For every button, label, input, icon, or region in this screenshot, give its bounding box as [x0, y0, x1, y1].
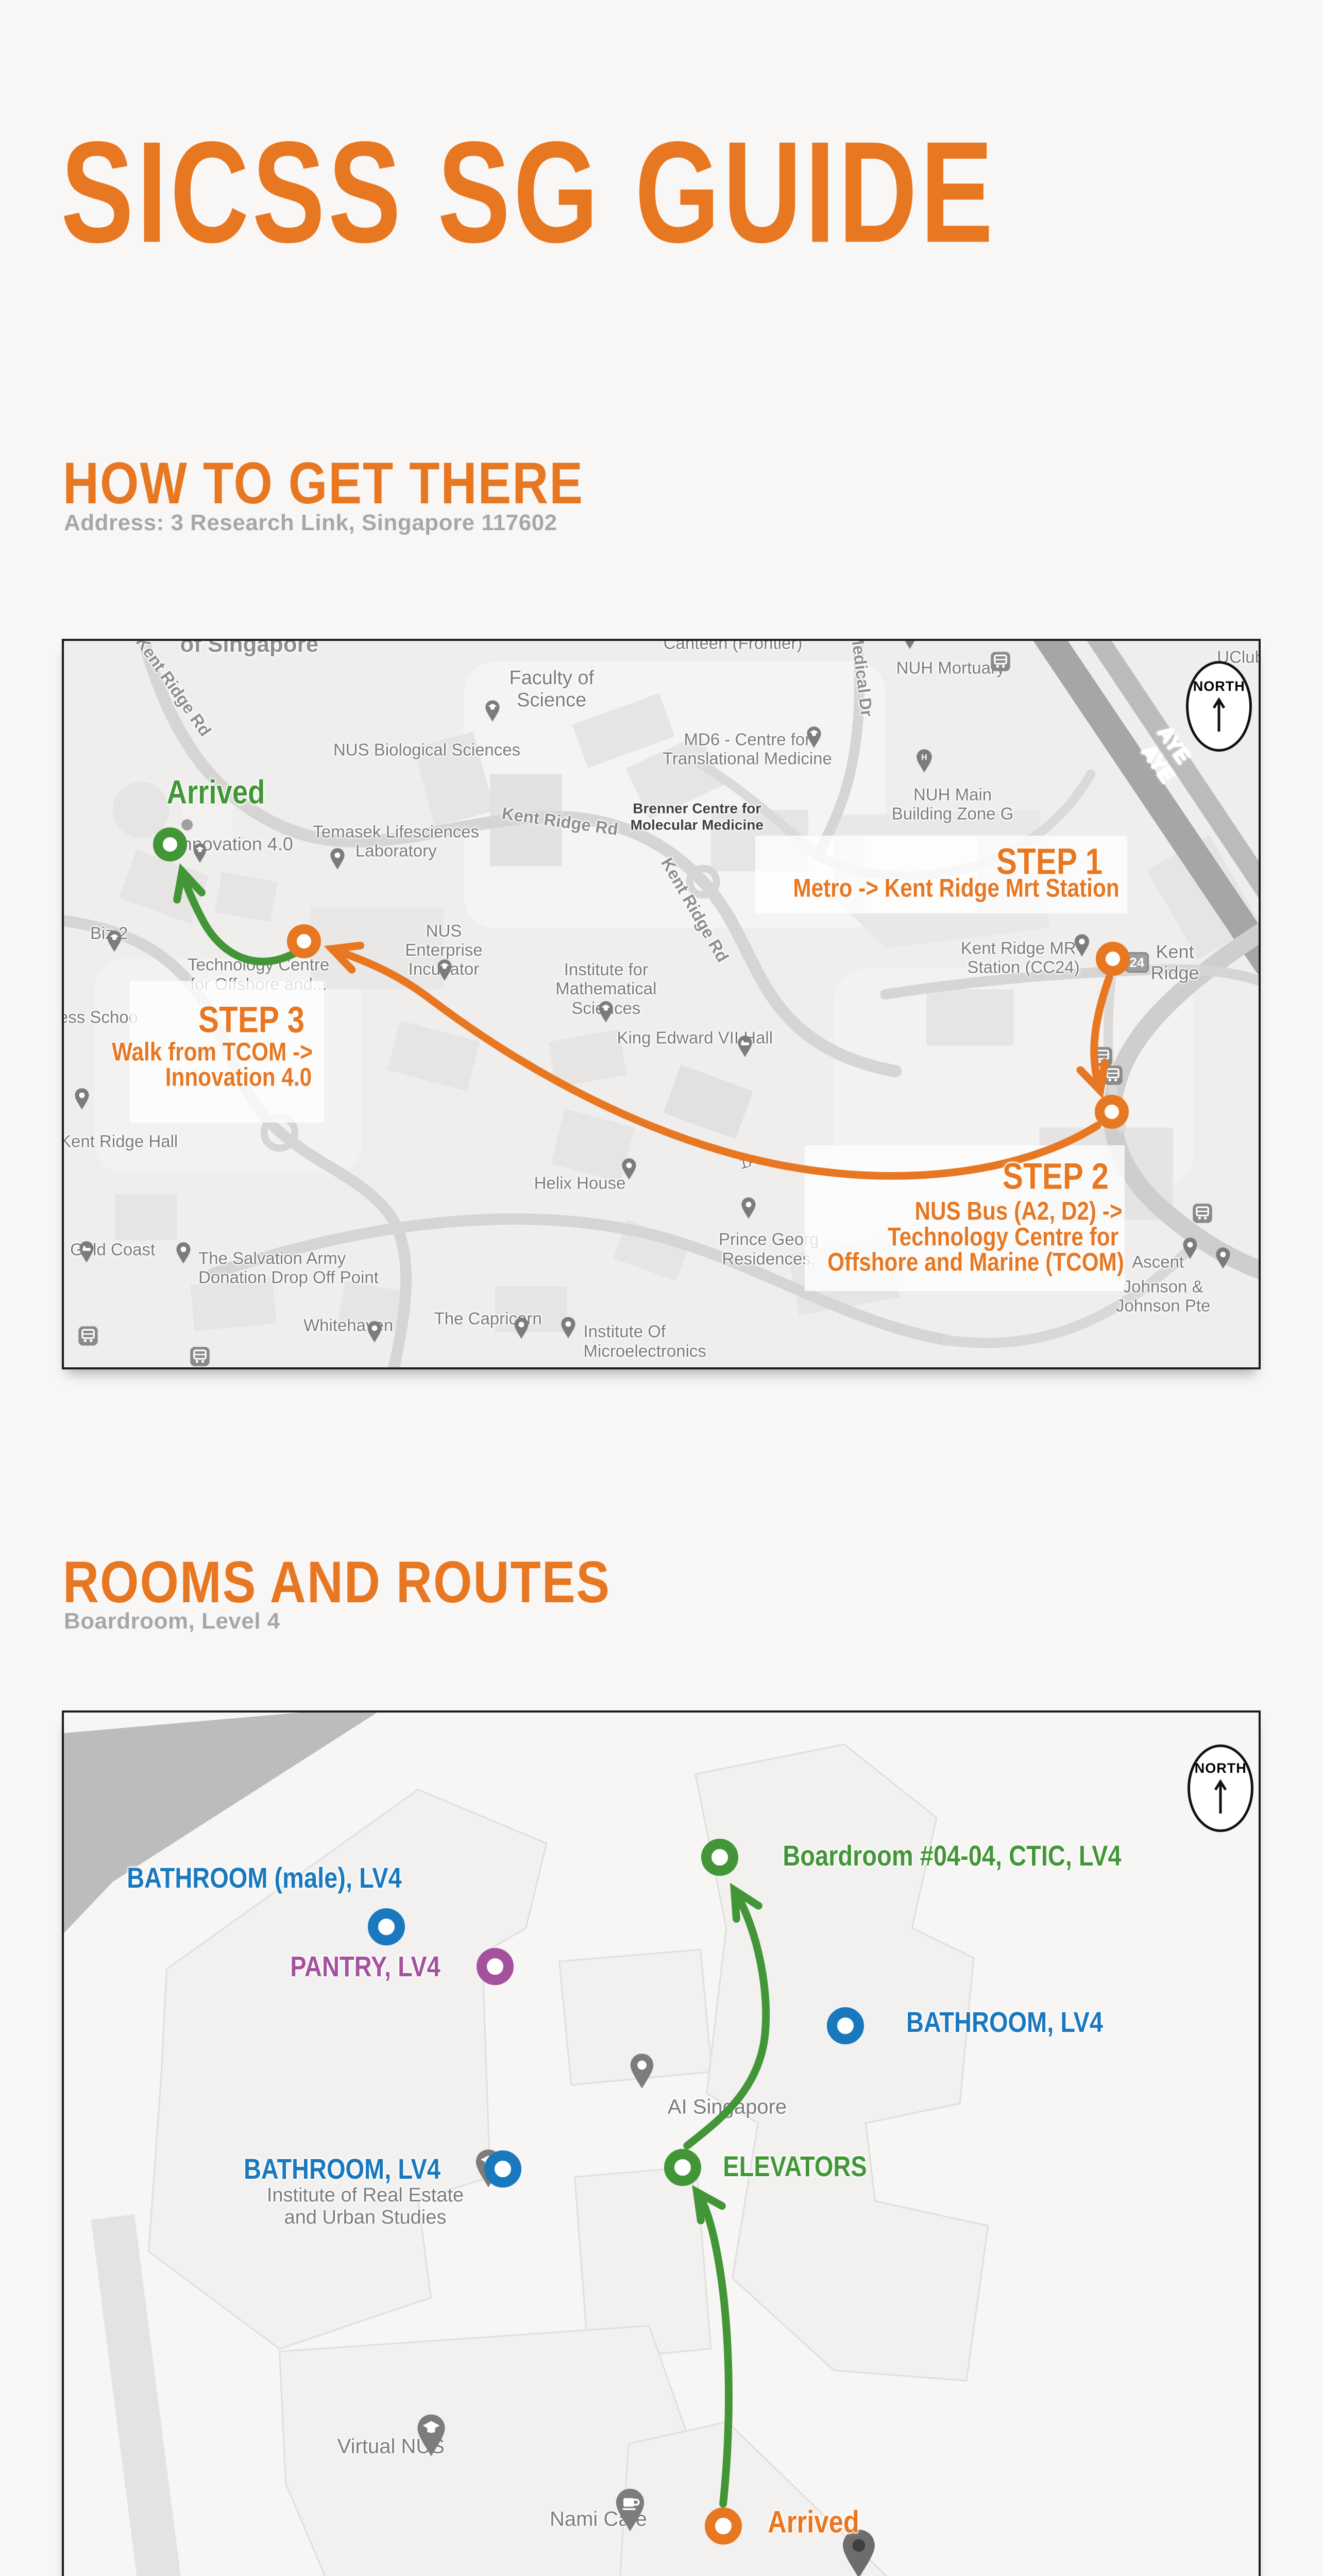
orange-route-marker	[1096, 942, 1130, 976]
plain-map-pin-icon	[1074, 934, 1090, 957]
map-label: Kent Ridge MRT Station (CC24)	[961, 938, 1086, 977]
bus-stop-icon	[1092, 1046, 1113, 1067]
grad-map-pin-icon	[415, 2413, 447, 2458]
cafe-map-pin-icon	[614, 2487, 646, 2533]
infographic-page: SICSS SG GUIDE HOW TO GET THERE Address:…	[0, 0, 1323, 2576]
map-rooms-and-routes: AI SingaporeInstitute of Real Estate and…	[62, 1710, 1261, 2576]
blue-route-marker	[368, 1908, 405, 1945]
grad-map-pin-icon	[485, 700, 501, 722]
map-label: NUH Mortuary	[896, 658, 1005, 677]
route-annotation: Boardroom #04-04, CTIC, LV4	[783, 1839, 1121, 1872]
purple-route-marker	[477, 1948, 514, 1985]
map-label: NUH Main Building Zone G	[892, 785, 1014, 824]
bus-stop-icon	[990, 651, 1011, 672]
route-annotation: STEP 2	[1003, 1156, 1109, 1197]
blue-route-marker	[827, 2007, 864, 2044]
section-heading-rooms-and-routes: ROOMS AND ROUTES	[63, 1548, 610, 1616]
route-annotation: BATHROOM, LV4	[906, 2006, 1103, 2038]
map-label: AI Singapore	[668, 2095, 787, 2119]
plain-map-pin-icon	[621, 1158, 637, 1180]
map-how-to-get-there: of SingaporeCanteen (Frontier)Kent Ridge…	[62, 639, 1261, 1369]
north-arrow-icon	[1211, 694, 1227, 735]
plain-map-pin-icon	[741, 1197, 757, 1219]
grad-map-pin-icon	[598, 1001, 614, 1023]
route-annotation: Arrived	[768, 2505, 859, 2540]
route-annotation: Metro -> Kent Ridge Mrt Station	[793, 874, 1119, 903]
map-label: Johnson & Johnson Pte	[1115, 1277, 1211, 1315]
map-label: Institute of Real Estate and Urban Studi…	[267, 2184, 464, 2229]
plain-map-pin-icon	[1215, 1247, 1231, 1269]
route-annotation: BATHROOM (male), LV4	[127, 1861, 402, 1894]
map-label: Institute Of Microelectronics	[584, 1322, 706, 1361]
bus-stop-icon	[1102, 1065, 1123, 1086]
plain-map-pin-icon	[902, 639, 918, 650]
route-annotation: Offshore and Marine (TCOM)	[827, 1248, 1124, 1277]
plain-map-pin-icon	[513, 1317, 529, 1340]
route-annotation: Arrived	[167, 774, 265, 811]
blue-route-marker	[484, 2150, 521, 2188]
plain-map-pin-icon	[1182, 1237, 1198, 1260]
boardroom-level-text: Boardroom, Level 4	[64, 1608, 280, 1634]
bed-map-pin-icon	[78, 1241, 94, 1263]
plain-map-pin-icon	[629, 2053, 655, 2090]
plain-map-pin-icon	[74, 1088, 90, 1110]
hospital-map-pin-icon: H	[915, 749, 933, 773]
bus-stop-icon	[1192, 1203, 1213, 1224]
bed-map-pin-icon	[737, 1035, 753, 1058]
orange-route-marker	[1095, 1095, 1129, 1129]
route-annotation: BATHROOM, LV4	[244, 2153, 440, 2185]
map-label: Kent Ridge Hall	[62, 1132, 178, 1151]
map-label: NUS Biological Sciences	[333, 740, 520, 759]
section-heading-how-to-get-there: HOW TO GET THERE	[63, 449, 584, 517]
orange-route-marker	[705, 2507, 742, 2545]
orange-route-marker	[287, 924, 321, 958]
map-label: ness Schoo	[62, 1007, 138, 1026]
north-label: NORTH	[1193, 679, 1245, 694]
green-route-marker	[664, 2149, 701, 2186]
bus-stop-icon	[190, 1346, 210, 1367]
north-arrow-icon	[1213, 1776, 1228, 1817]
green-route-marker	[153, 827, 187, 861]
green-route-marker	[701, 1839, 738, 1876]
plain-map-pin-icon	[330, 848, 346, 870]
svg-text:H: H	[922, 753, 927, 762]
north-compass: NORTH	[1188, 1744, 1253, 1832]
plain-map-pin-icon	[176, 1242, 192, 1264]
map-label: The Salvation Army Donation Drop Off Poi…	[198, 1249, 379, 1287]
route-annotation: STEP 3	[198, 998, 304, 1040]
route-annotation: Innovation 4.0	[165, 1063, 312, 1092]
grad-map-pin-icon	[806, 726, 822, 749]
map-label: Ascent	[1132, 1252, 1184, 1272]
grad-map-pin-icon	[193, 843, 207, 863]
plain-map-pin-icon	[366, 1320, 382, 1343]
grad-map-pin-icon	[106, 930, 122, 953]
page-title: SICSS SG GUIDE	[61, 109, 996, 275]
north-compass: NORTH	[1186, 661, 1252, 752]
north-label: NORTH	[1195, 1760, 1247, 1776]
bus-stop-icon	[78, 1326, 98, 1346]
map-label: Prince Georg Residences,	[719, 1230, 819, 1268]
map-label: Faculty of Science	[509, 668, 594, 712]
map-label: Canteen (Frontier)	[664, 639, 803, 653]
route-annotation: PANTRY, LV4	[290, 1950, 440, 1982]
route-annotation: ELEVATORS	[723, 2150, 867, 2182]
map-label: of Singapore	[180, 639, 318, 657]
map-label: Brenner Centre for Molecular Medicine	[631, 800, 764, 833]
map-label: Helix House	[534, 1173, 626, 1192]
plain-map-pin-icon	[560, 1316, 576, 1339]
address-text: Address: 3 Research Link, Singapore 1176…	[64, 510, 557, 536]
grad-map-pin-icon	[437, 959, 453, 981]
